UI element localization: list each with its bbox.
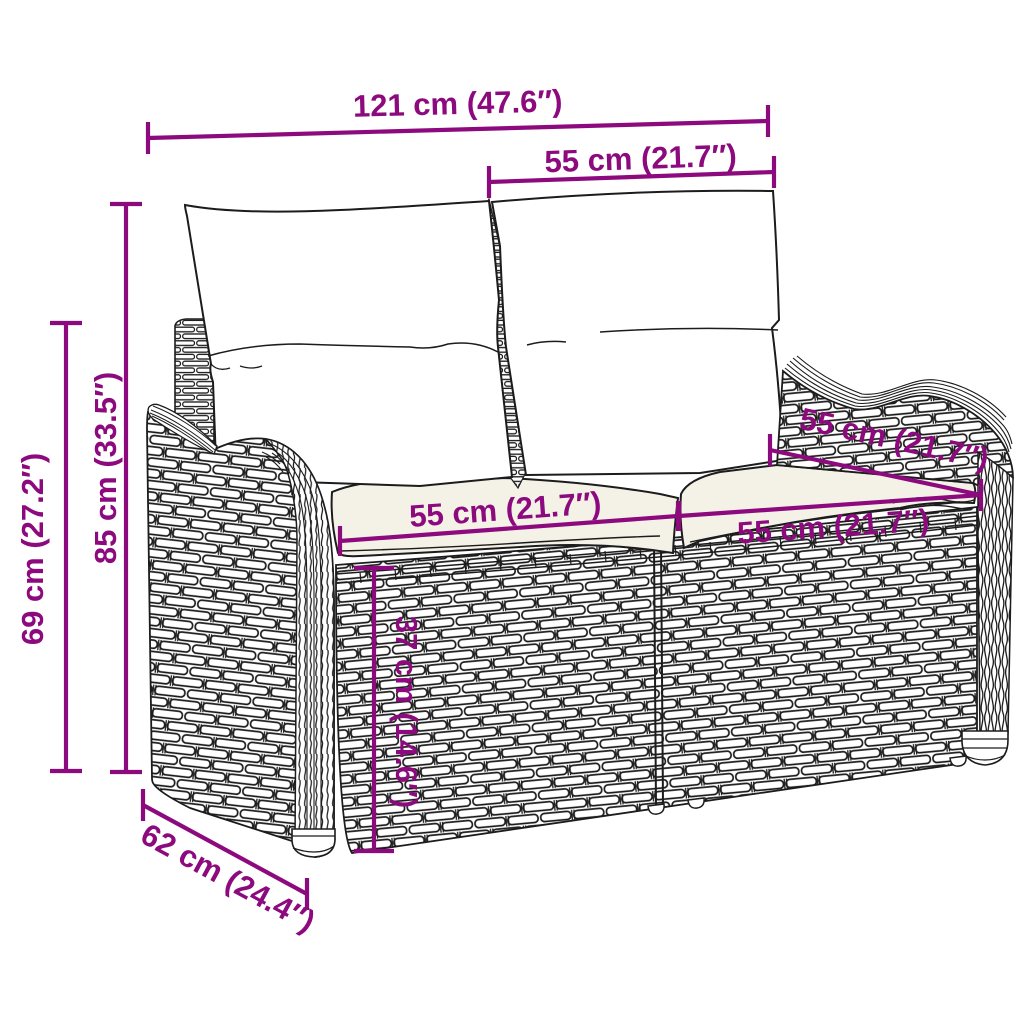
svg-text:121 cm (47.6″): 121 cm (47.6″) (353, 83, 563, 123)
svg-text:85 cm (33.5″): 85 cm (33.5″) (88, 372, 123, 564)
svg-text:55 cm (21.7″): 55 cm (21.7″) (544, 138, 737, 180)
svg-text:37 cm (14.6″): 37 cm (14.6″) (389, 616, 424, 808)
svg-text:69 cm (27.2″): 69 cm (27.2″) (15, 453, 50, 645)
